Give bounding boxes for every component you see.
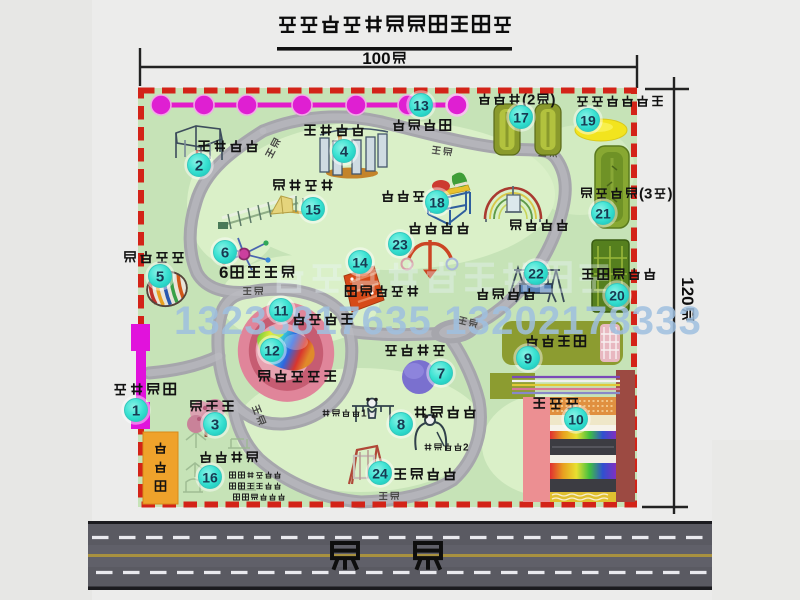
svg-text:16: 16 xyxy=(202,470,218,486)
svg-text:5: 5 xyxy=(156,269,164,286)
svg-text:21: 21 xyxy=(595,206,611,222)
svg-text:11: 11 xyxy=(274,303,289,319)
svg-text:23: 23 xyxy=(392,237,408,253)
svg-text:): ) xyxy=(668,185,673,202)
svg-text:15: 15 xyxy=(305,202,321,218)
svg-text:7: 7 xyxy=(437,366,445,383)
svg-text:18: 18 xyxy=(429,195,445,211)
svg-text:9: 9 xyxy=(524,351,532,368)
svg-text:): ) xyxy=(551,91,556,108)
svg-text:12: 12 xyxy=(264,343,280,359)
svg-text:10: 10 xyxy=(568,412,584,428)
svg-text:1: 1 xyxy=(132,403,140,420)
svg-text:3: 3 xyxy=(211,417,219,434)
svg-text:8: 8 xyxy=(397,417,405,434)
svg-text:17: 17 xyxy=(513,110,529,126)
svg-text:20: 20 xyxy=(609,288,625,304)
svg-text:14: 14 xyxy=(352,255,368,271)
svg-text:2: 2 xyxy=(195,158,203,175)
svg-text:13: 13 xyxy=(413,98,429,114)
svg-text:6: 6 xyxy=(221,245,229,262)
svg-text:22: 22 xyxy=(528,266,544,282)
svg-text:19: 19 xyxy=(580,113,596,129)
svg-text:24: 24 xyxy=(372,466,388,482)
svg-text:(3: (3 xyxy=(639,185,652,202)
svg-text:100: 100 xyxy=(362,49,390,68)
svg-text:4: 4 xyxy=(340,144,349,161)
svg-text:1: 1 xyxy=(361,409,367,420)
svg-text:2: 2 xyxy=(463,443,469,454)
